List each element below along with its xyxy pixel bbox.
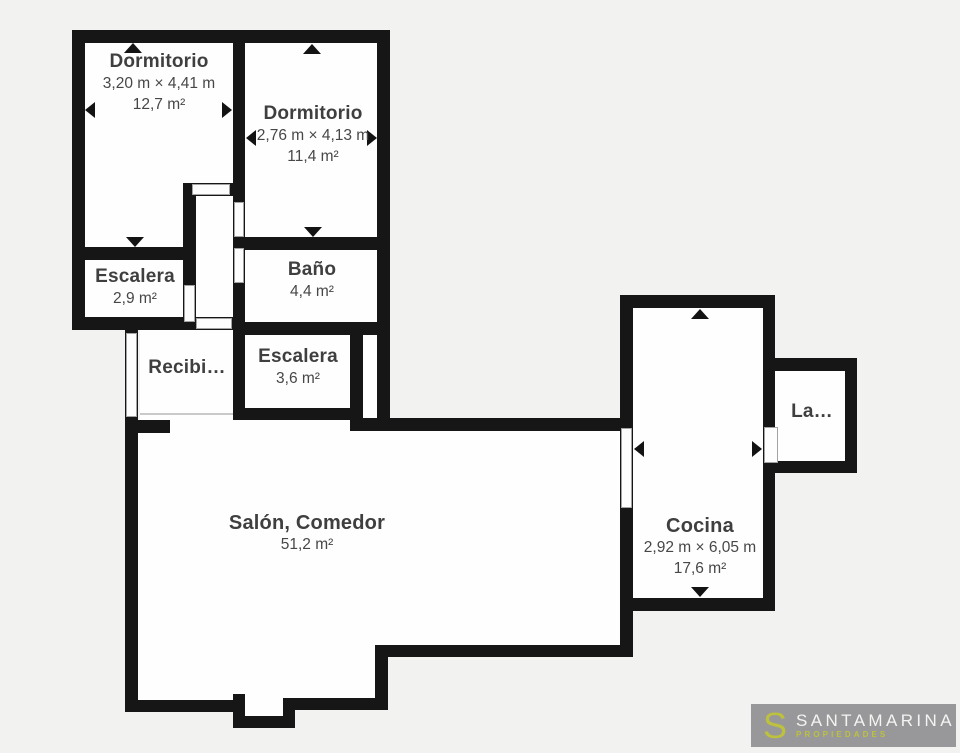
room-label-bedroom-2: Dormitorio 2,76 m × 4,13 m 11,4 m² bbox=[257, 103, 369, 167]
dim-arrow-down-icon bbox=[304, 227, 322, 237]
wall-kitchen-top bbox=[620, 295, 775, 308]
room-name: Escalera bbox=[258, 346, 338, 368]
room-name: Baño bbox=[288, 259, 336, 281]
door-bedroom-2 bbox=[234, 202, 244, 237]
dim-arrow-left-icon bbox=[634, 441, 644, 457]
door-kitchen bbox=[621, 428, 632, 508]
wall-living-top bbox=[350, 418, 633, 431]
room-label-stairs-1: Escalera 2,9 m² bbox=[95, 266, 175, 309]
wall-living-bottom-mid bbox=[283, 698, 388, 710]
room-label-bedroom-1: Dormitorio 3,20 m × 4,41 m 12,7 m² bbox=[103, 51, 215, 115]
dim-arrow-down-icon bbox=[691, 587, 709, 597]
dim-arrow-up-icon bbox=[691, 309, 709, 319]
room-dimensions: 2,92 m × 6,05 m bbox=[644, 537, 756, 558]
logo-tagline: PROPIEDADES bbox=[796, 730, 955, 739]
dim-arrow-left-icon bbox=[85, 102, 95, 118]
room-name: Dormitorio bbox=[103, 51, 215, 73]
room-label-bathroom: Baño 4,4 m² bbox=[288, 259, 336, 302]
wall-stairs-2-right bbox=[350, 322, 363, 420]
wall-block-top bbox=[72, 30, 390, 43]
dim-arrow-up-icon bbox=[303, 44, 321, 54]
wall-kitchen-bottom bbox=[620, 598, 775, 611]
dim-arrow-right-icon bbox=[752, 441, 762, 457]
wall-living-left bbox=[125, 420, 138, 712]
room-name: Cocina bbox=[644, 515, 756, 537]
wall-bedroom-1-bottom bbox=[72, 247, 196, 260]
door-corridor-top bbox=[192, 184, 230, 195]
room-name: La… bbox=[791, 401, 833, 423]
hall-living-boundary-line bbox=[140, 413, 233, 415]
wall-bedroom-2-bottom bbox=[233, 237, 390, 250]
wall-block-right bbox=[377, 30, 390, 420]
room-name: Recibi… bbox=[148, 357, 225, 379]
door-corridor-bottom bbox=[196, 318, 232, 329]
room-label-living-room: Salón, Comedor 51,2 m² bbox=[229, 512, 385, 555]
room-area: 4,4 m² bbox=[288, 281, 336, 302]
room-area: 51,2 m² bbox=[229, 534, 385, 555]
wall-block-left bbox=[72, 30, 85, 330]
door-stairs-1 bbox=[184, 285, 195, 322]
dim-arrow-right-icon bbox=[222, 102, 232, 118]
floor-plan: Dormitorio 3,20 m × 4,41 m 12,7 m² Dormi… bbox=[0, 0, 960, 753]
room-name: Dormitorio bbox=[257, 103, 369, 125]
wall-living-bottom-right bbox=[375, 645, 633, 657]
door-bathroom bbox=[234, 248, 244, 283]
room-area: 17,6 m² bbox=[644, 558, 756, 579]
logo-initial: S bbox=[763, 708, 787, 744]
wall-laundry-right bbox=[845, 358, 857, 473]
logo-text-block: SANTAMARINA PROPIEDADES bbox=[796, 712, 955, 739]
room-name: Salón, Comedor bbox=[229, 512, 385, 534]
room-dimensions: 2,76 m × 4,13 m bbox=[257, 125, 369, 146]
room-dimensions: 3,20 m × 4,41 m bbox=[103, 73, 215, 94]
agency-logo: S SANTAMARINA PROPIEDADES bbox=[751, 704, 956, 747]
door-entrance bbox=[126, 333, 137, 417]
floor-living-room-left bbox=[137, 645, 375, 700]
door-laundry bbox=[764, 427, 778, 463]
wall-laundry-top bbox=[763, 358, 857, 371]
floor-living-room-notch bbox=[245, 700, 283, 716]
room-label-hall: Recibi… bbox=[148, 357, 225, 379]
wall-living-bottom-left bbox=[125, 700, 237, 712]
wall-stairs-2-bottom bbox=[233, 408, 363, 420]
floor-stair-corridor bbox=[196, 196, 233, 319]
wall-bathroom-bottom bbox=[233, 322, 390, 335]
room-name: Escalera bbox=[95, 266, 175, 288]
room-area: 3,6 m² bbox=[258, 368, 338, 389]
dim-arrow-left-icon bbox=[246, 130, 256, 146]
room-area: 12,7 m² bbox=[103, 94, 215, 115]
room-label-stairs-2: Escalera 3,6 m² bbox=[258, 346, 338, 389]
logo-brand-name: SANTAMARINA bbox=[796, 712, 955, 730]
dim-arrow-down-icon bbox=[126, 237, 144, 247]
room-area: 11,4 m² bbox=[257, 146, 369, 167]
room-label-kitchen: Cocina 2,92 m × 6,05 m 17,6 m² bbox=[644, 515, 756, 579]
floor-gap-strip bbox=[363, 335, 377, 420]
room-label-laundry: La… bbox=[791, 401, 833, 423]
room-area: 2,9 m² bbox=[95, 288, 175, 309]
